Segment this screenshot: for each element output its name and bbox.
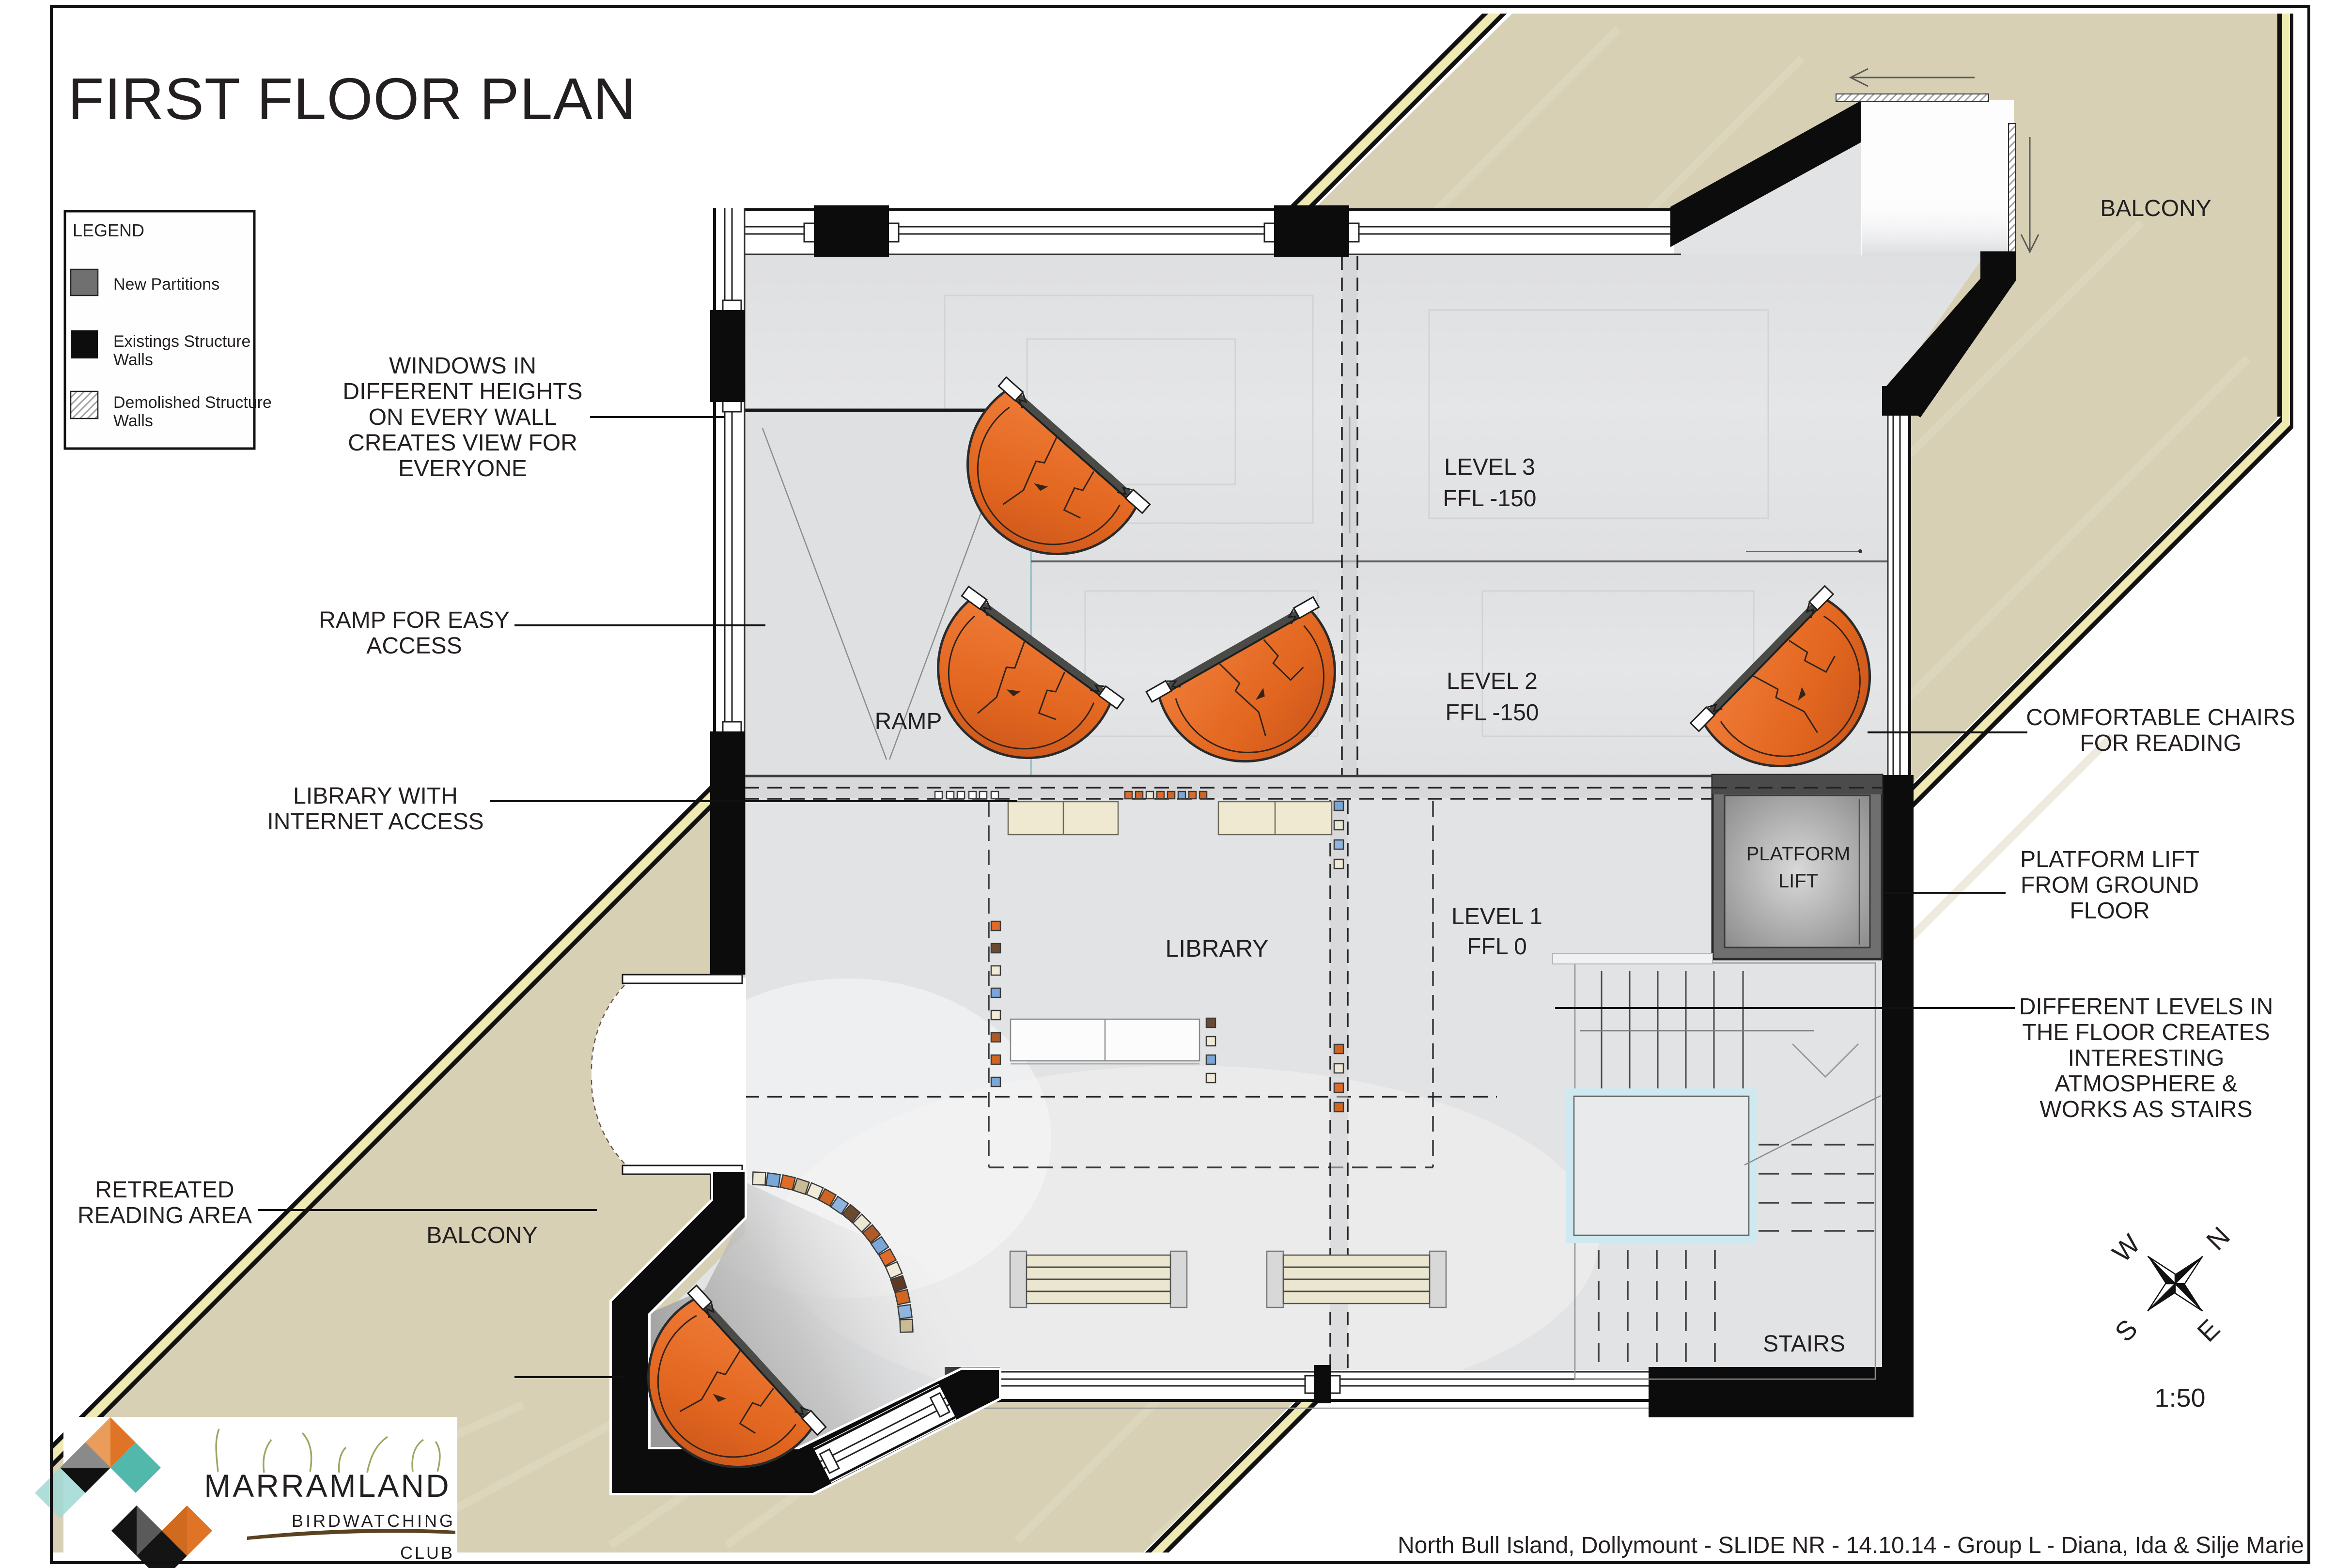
svg-text:LIBRARY WITH: LIBRARY WITH (293, 783, 458, 809)
svg-text:FROM GROUND: FROM GROUND (2021, 872, 2199, 898)
svg-text:1:50: 1:50 (2154, 1383, 2205, 1413)
svg-text:RAMP FOR EASY: RAMP FOR EASY (319, 607, 510, 633)
svg-text:DIFFERENT LEVELS IN: DIFFERENT LEVELS IN (2019, 994, 2273, 1020)
svg-text:EVERYONE: EVERYONE (398, 456, 527, 481)
svg-text:LIBRARY: LIBRARY (1165, 935, 1268, 962)
svg-text:LEVEL 1: LEVEL 1 (1451, 904, 1542, 930)
svg-text:FFL -150: FFL -150 (1446, 700, 1539, 726)
svg-text:FLOOR: FLOOR (2070, 898, 2149, 924)
svg-text:Walls: Walls (113, 412, 153, 430)
svg-text:LEVEL 3: LEVEL 3 (1444, 454, 1535, 480)
svg-text:ON EVERY WALL: ON EVERY WALL (369, 404, 557, 430)
svg-text:ACCESS: ACCESS (366, 633, 462, 659)
svg-text:PLATFORM LIFT: PLATFORM LIFT (2020, 847, 2199, 872)
svg-text:BIRDWATCHING: BIRDWATCHING (292, 1511, 455, 1531)
svg-text:READING AREA: READING AREA (78, 1203, 252, 1228)
svg-text:Demolished Structure: Demolished Structure (113, 393, 272, 412)
svg-text:DIFFERENT HEIGHTS: DIFFERENT HEIGHTS (343, 379, 582, 404)
svg-text:RETREATED: RETREATED (95, 1177, 234, 1203)
svg-text:LEVEL 2: LEVEL 2 (1447, 668, 1538, 694)
svg-text:Walls: Walls (113, 351, 153, 369)
svg-text:WINDOWS IN: WINDOWS IN (389, 353, 536, 379)
svg-text:COMFORTABLE CHAIRS: COMFORTABLE CHAIRS (2026, 705, 2295, 730)
svg-text:MARRAMLAND: MARRAMLAND (204, 1468, 451, 1504)
svg-text:WORKS AS STAIRS: WORKS AS STAIRS (2040, 1097, 2252, 1122)
svg-text:INTERNET ACCESS: INTERNET ACCESS (267, 809, 483, 835)
svg-text:BALCONY: BALCONY (426, 1223, 537, 1248)
svg-text:CLUB: CLUB (400, 1543, 454, 1563)
svg-text:PLATFORM: PLATFORM (1746, 843, 1851, 865)
svg-text:North Bull Island, Dollymount: North Bull Island, Dollymount - SLIDE NR… (1398, 1533, 2304, 1558)
svg-text:THE FLOOR CREATES: THE FLOOR CREATES (2022, 1020, 2270, 1045)
svg-text:FFL 0: FFL 0 (1467, 934, 1527, 960)
svg-text:STAIRS: STAIRS (1763, 1331, 1845, 1357)
svg-text:LIFT: LIFT (1778, 870, 1818, 892)
svg-text:New Partitions: New Partitions (113, 275, 219, 294)
svg-text:ATMOSPHERE &: ATMOSPHERE & (2055, 1071, 2238, 1097)
svg-text:BALCONY: BALCONY (2100, 196, 2211, 221)
svg-text:CREATES VIEW FOR: CREATES VIEW FOR (348, 430, 577, 456)
svg-text:INTERESTING: INTERESTING (2068, 1045, 2225, 1071)
svg-text:FFL -150: FFL -150 (1443, 486, 1537, 512)
svg-text:Existings Structure: Existings Structure (113, 332, 250, 351)
svg-text:FIRST FLOOR PLAN: FIRST FLOOR PLAN (68, 66, 636, 132)
svg-text:RAMP: RAMP (875, 709, 942, 734)
svg-text:FOR READING: FOR READING (2080, 730, 2241, 756)
svg-text:LEGEND: LEGEND (73, 220, 144, 240)
